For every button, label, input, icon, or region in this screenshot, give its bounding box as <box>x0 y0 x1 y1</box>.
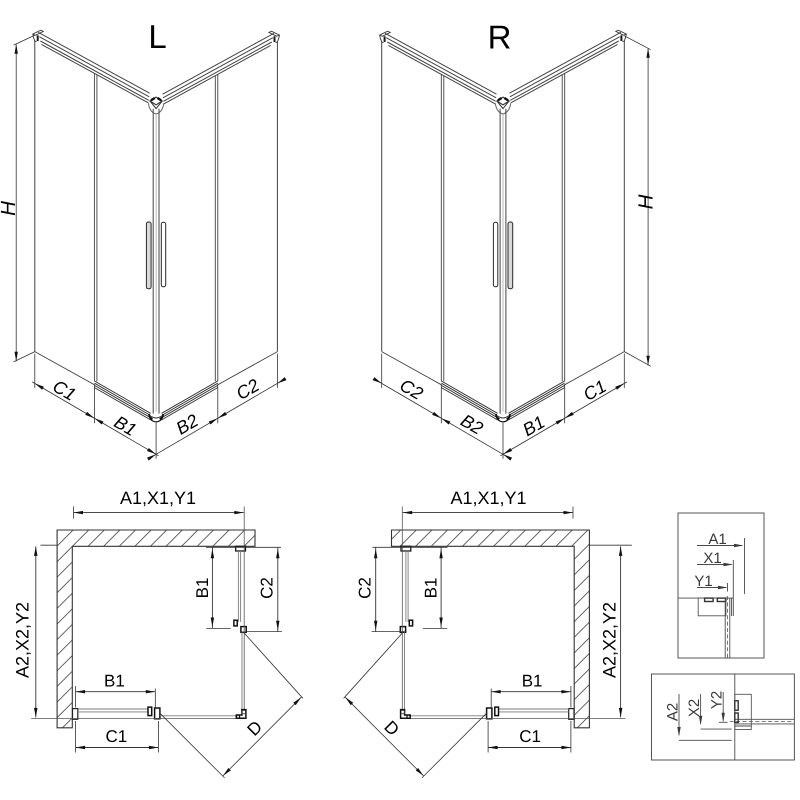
svg-text:B1: B1 <box>104 672 125 691</box>
svg-text:H: H <box>0 201 20 216</box>
svg-text:A1,X1,Y1: A1,X1,Y1 <box>450 488 526 508</box>
svg-text:C2: C2 <box>258 577 277 599</box>
svg-text:A2,X2,Y2: A2,X2,Y2 <box>599 602 619 678</box>
svg-text:L: L <box>148 18 166 55</box>
svg-text:B1: B1 <box>193 578 212 599</box>
svg-text:B1: B1 <box>522 672 543 691</box>
svg-text:R: R <box>488 18 512 55</box>
svg-text:C1: C1 <box>519 727 541 746</box>
svg-text:A2,X2,Y2: A2,X2,Y2 <box>13 602 33 678</box>
svg-text:B1: B1 <box>422 578 441 599</box>
svg-text:H: H <box>634 194 657 209</box>
svg-text:C1: C1 <box>106 727 128 746</box>
svg-text:C2: C2 <box>356 577 375 599</box>
svg-text:A1,X1,Y1: A1,X1,Y1 <box>120 488 196 508</box>
